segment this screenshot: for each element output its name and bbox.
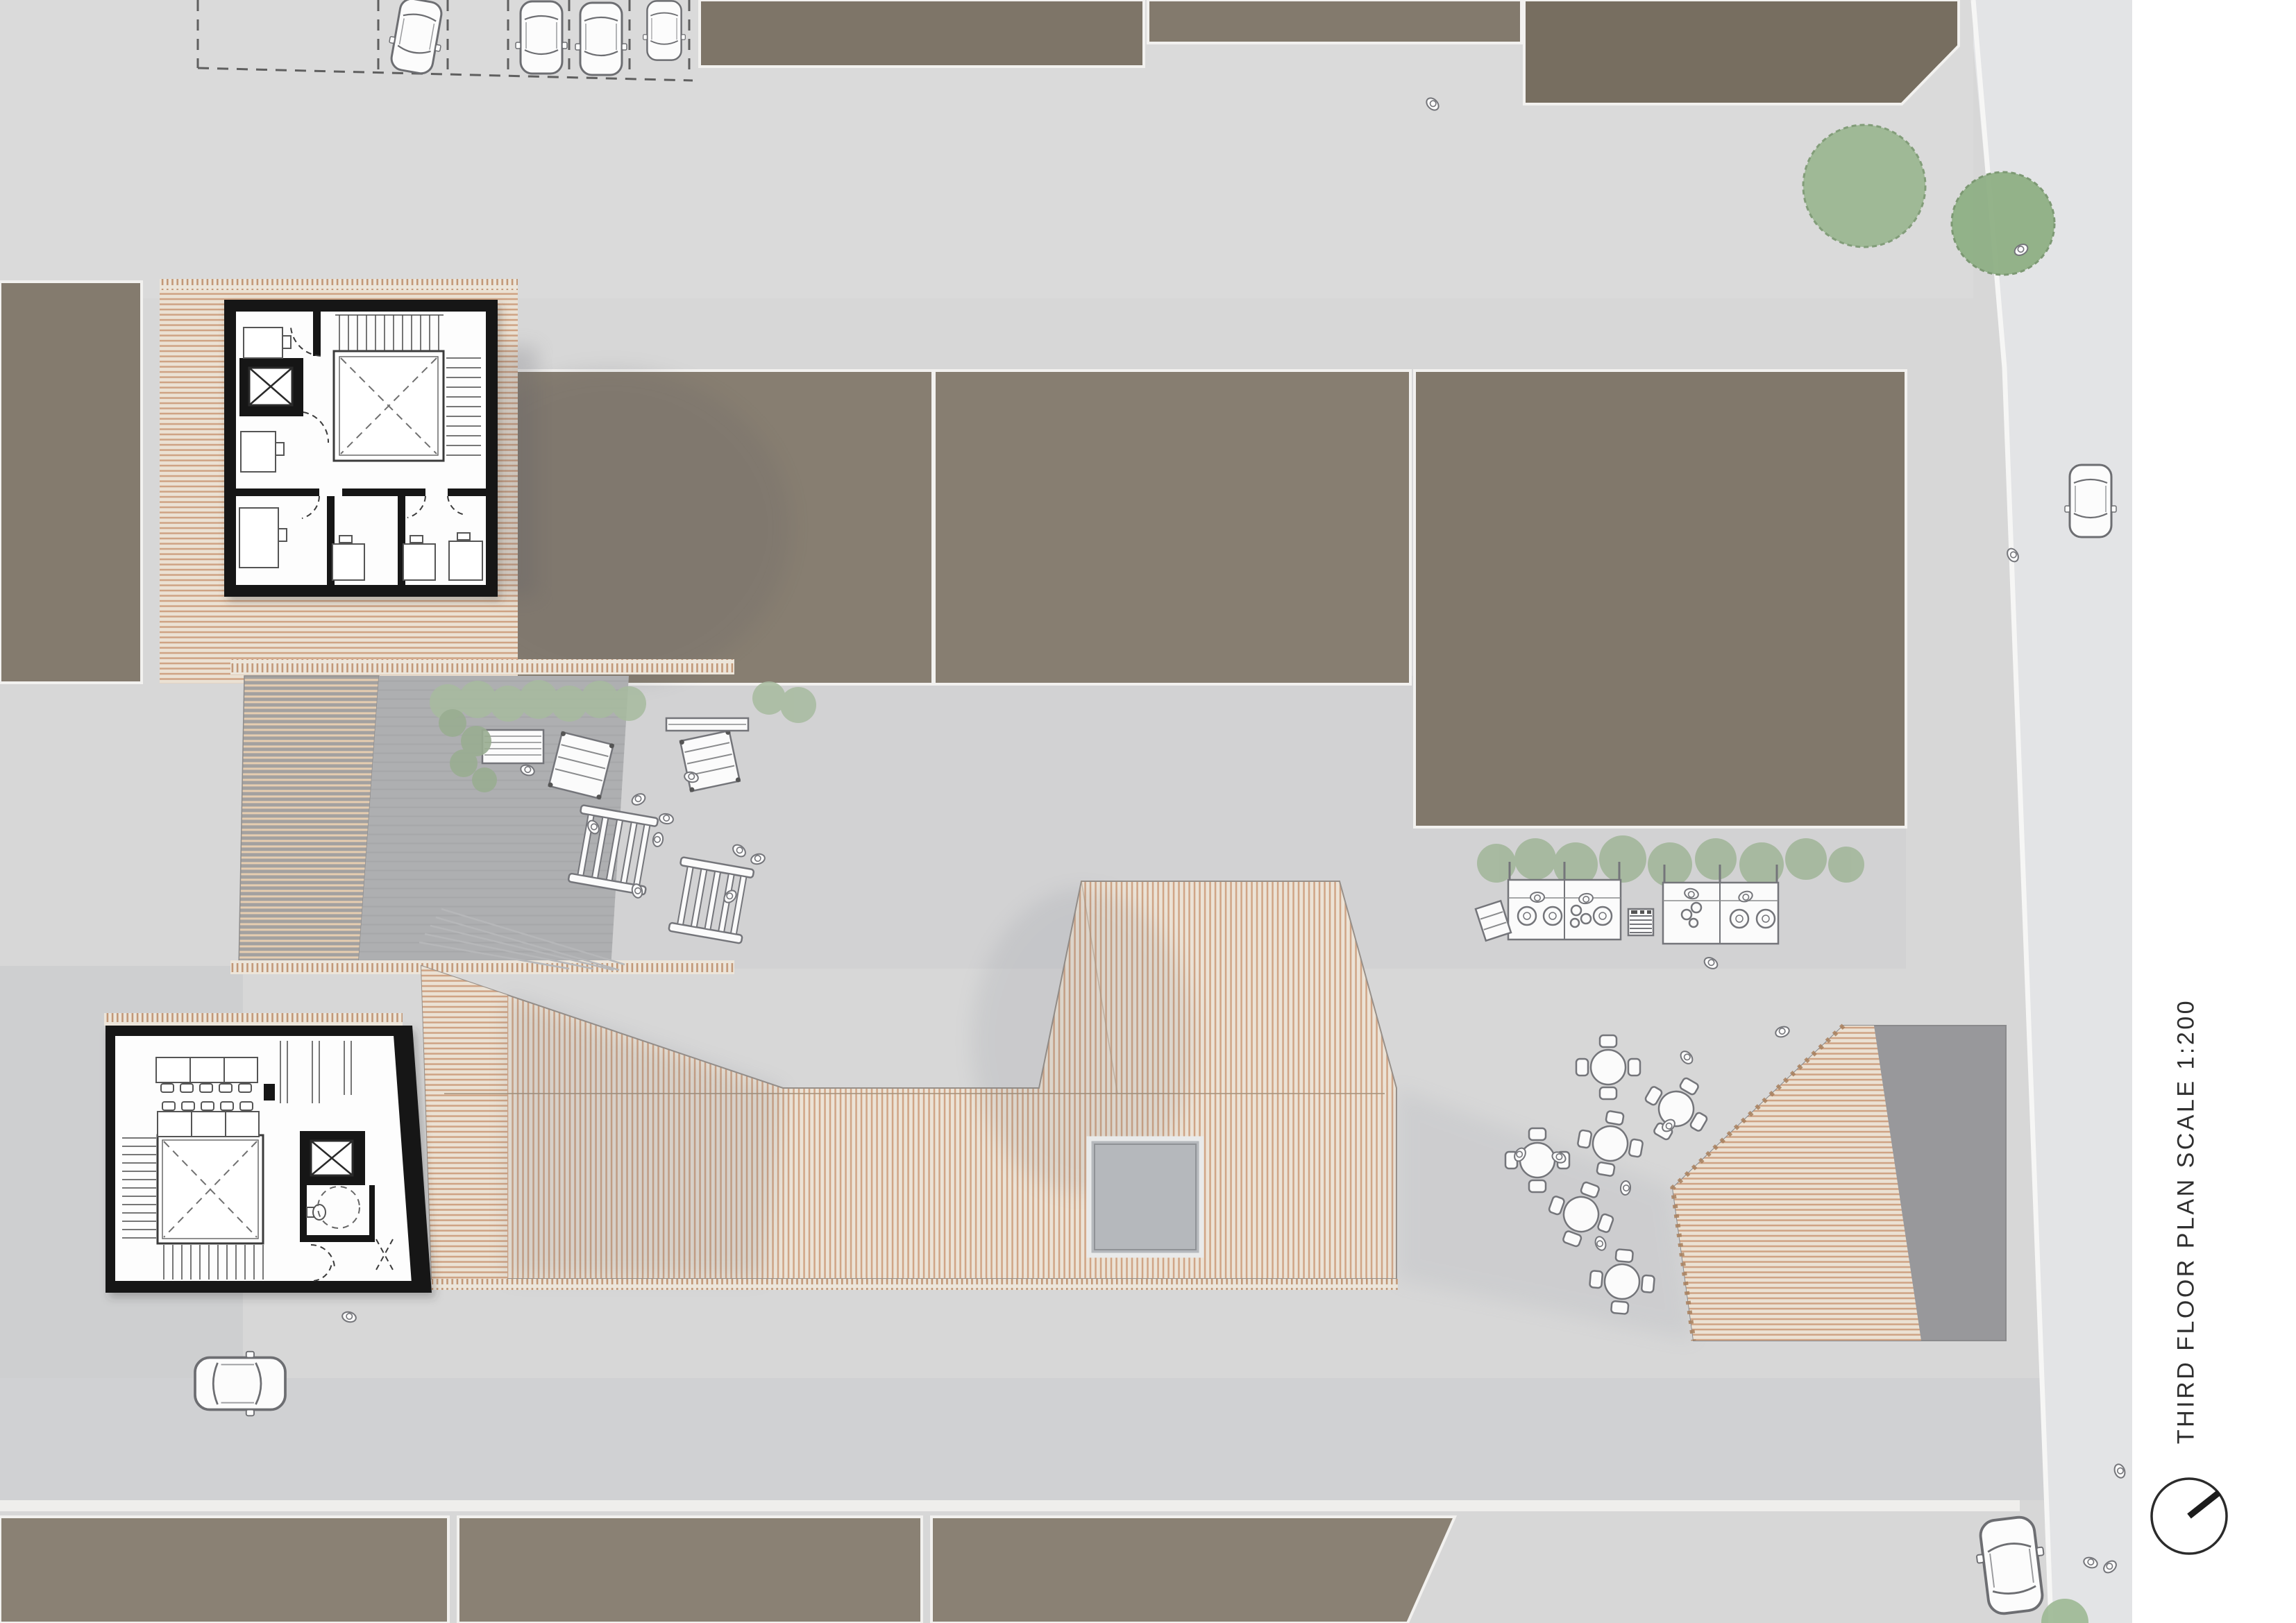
- sheet-margin: [2132, 0, 2296, 1623]
- roof-ticks-lower-plan: [104, 1013, 403, 1026]
- floor-plan-upper: [224, 300, 498, 597]
- plan-title: THIRD FLOOR PLAN SCALE 1:200: [2173, 999, 2200, 1444]
- floor-plan-lower: [105, 1026, 432, 1293]
- north-arrow-icon: [2152, 1479, 2227, 1554]
- plan-sheet: THIRD FLOOR PLAN SCALE 1:200: [0, 0, 2296, 1623]
- site-plan-drawing: [0, 0, 2296, 1623]
